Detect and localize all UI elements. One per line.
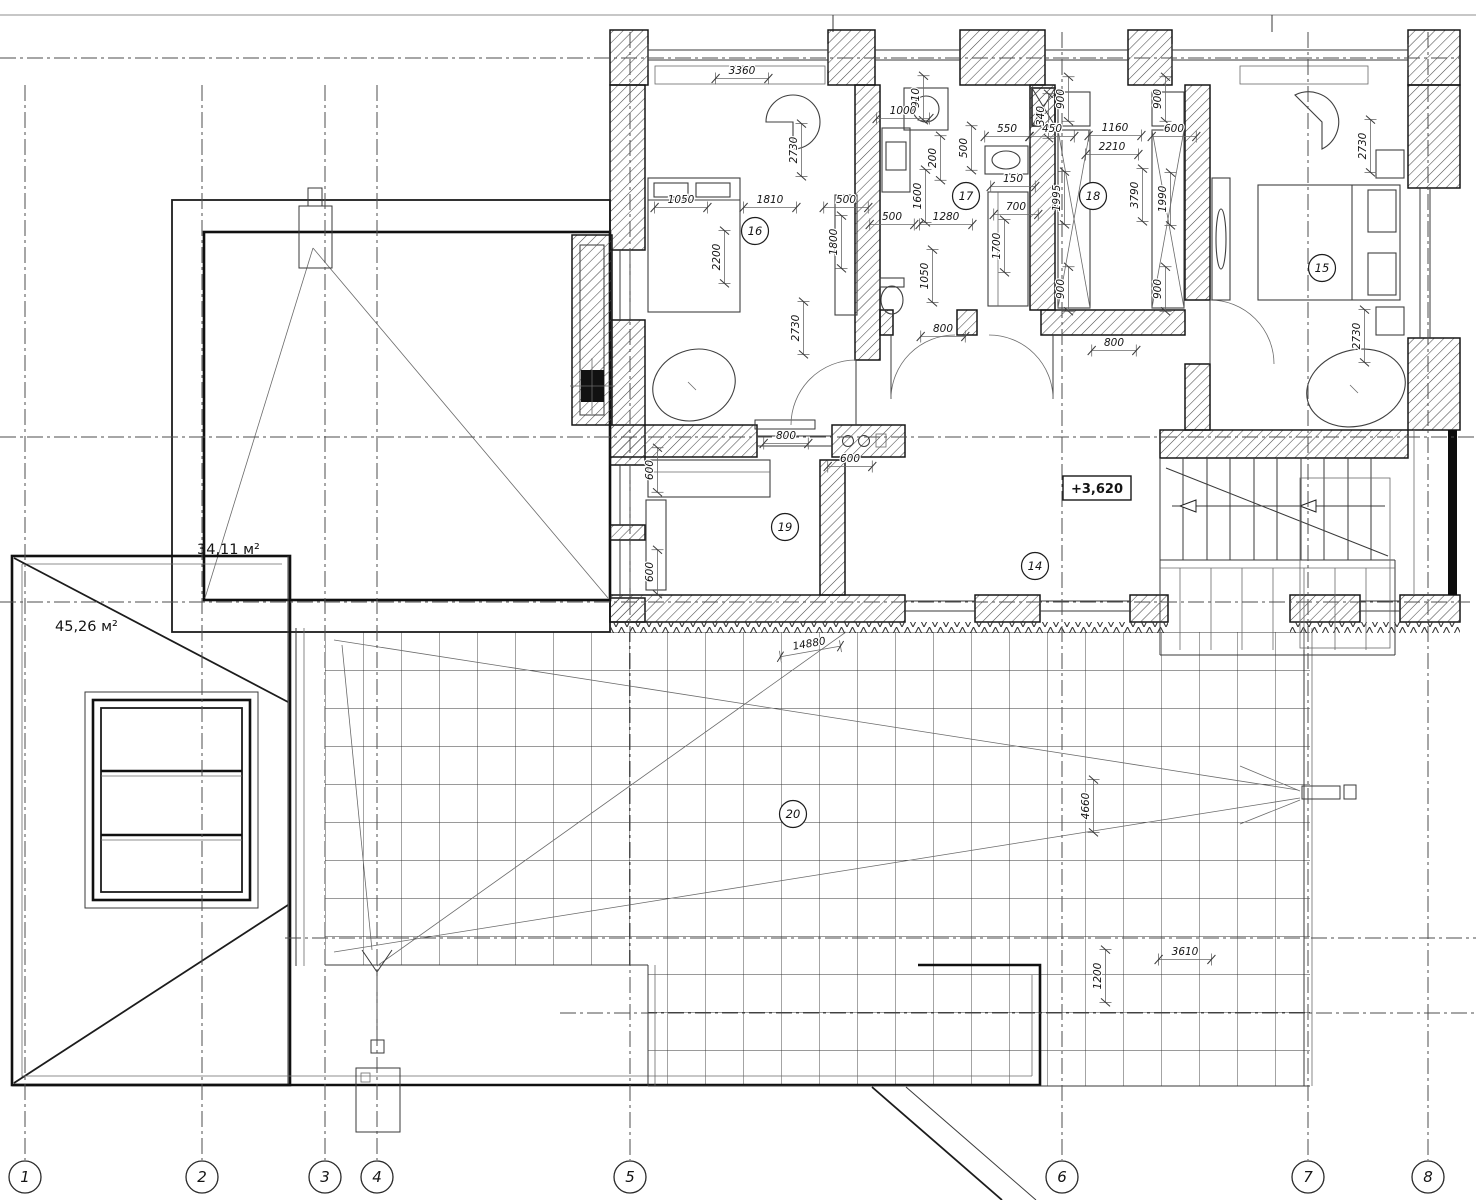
svg-text:7: 7	[1303, 1168, 1313, 1186]
axis-bubble: 3	[309, 1161, 341, 1193]
dimension-label: 200	[927, 132, 947, 185]
window-room19-left-1	[620, 465, 630, 525]
svg-text:1000: 1000	[890, 105, 917, 117]
svg-text:1050: 1050	[668, 194, 695, 206]
dimension-label: 550	[981, 123, 1034, 143]
radiator-room15	[1240, 66, 1368, 84]
axis-bubble: 5	[614, 1161, 646, 1193]
window-stair-right	[1414, 430, 1457, 595]
svg-text:2730: 2730	[1357, 132, 1369, 159]
rug-room15	[1298, 338, 1414, 437]
svg-text:6: 6	[1057, 1168, 1067, 1186]
dimension-label: 3360	[712, 65, 773, 85]
svg-text:1800: 1800	[828, 228, 840, 255]
room-number-bubble: 20	[780, 801, 807, 828]
svg-text:2730: 2730	[790, 314, 802, 341]
dimension-label: 1280	[916, 211, 977, 231]
svg-text:1995: 1995	[1051, 184, 1063, 211]
svg-text:600: 600	[644, 460, 656, 480]
dimension-label: 2730	[788, 120, 808, 181]
svg-text:3: 3	[320, 1168, 330, 1186]
exterior-chimney-left	[570, 235, 615, 425]
dimension-label: 500	[958, 122, 978, 175]
svg-text:1600: 1600	[912, 182, 924, 209]
svg-text:800: 800	[1104, 337, 1124, 349]
room-number-bubble: 14	[1022, 553, 1049, 580]
svg-text:3610: 3610	[1172, 946, 1199, 958]
svg-text:4: 4	[372, 1168, 382, 1186]
svg-text:900: 900	[1152, 279, 1164, 299]
axis-bubble: 4	[361, 1161, 393, 1193]
svg-text:500: 500	[882, 211, 902, 223]
dresser-room19	[648, 460, 770, 497]
nightstand-1	[1376, 150, 1404, 178]
svg-text:550: 550	[997, 123, 1017, 135]
room-number-bubble: 16	[742, 218, 769, 245]
door-bathroom17	[891, 335, 955, 399]
svg-text:2730: 2730	[788, 136, 800, 163]
area-label-annex: 34,11 м²	[197, 542, 260, 558]
dimension-label: 1160	[1085, 122, 1146, 142]
svg-text:450: 450	[1042, 123, 1062, 135]
area-label-lower-roof: 45,26 м²	[55, 619, 118, 635]
dimension-label: 1700	[991, 216, 1011, 277]
svg-text:19: 19	[778, 520, 793, 534]
dimension-label: 800	[1088, 337, 1141, 357]
svg-text:20: 20	[786, 807, 801, 821]
bed-room15	[1258, 185, 1400, 300]
svg-text:2: 2	[197, 1168, 207, 1186]
terrace-tiles	[325, 632, 1310, 1086]
svg-text:1050: 1050	[919, 262, 931, 289]
room-number-bubble: 19	[772, 514, 799, 541]
axis-bubble: 1	[9, 1161, 41, 1193]
dimension-label: 900	[1152, 263, 1172, 316]
svg-text:5: 5	[625, 1168, 635, 1186]
svg-text:1700: 1700	[991, 232, 1003, 259]
svg-text:900: 900	[1055, 89, 1067, 109]
svg-text:2200: 2200	[711, 243, 723, 270]
elevation-value: +3,620	[1071, 482, 1123, 497]
dimension-label: 2200	[711, 227, 731, 288]
svg-text:18: 18	[1086, 189, 1101, 203]
svg-text:500: 500	[836, 194, 856, 206]
svg-text:600: 600	[1164, 123, 1184, 135]
console-mirror	[1212, 178, 1230, 300]
svg-text:3790: 3790	[1129, 181, 1141, 208]
plan-canvas: +3,620 34,11 м² 45,26 м² 336010501810500…	[0, 0, 1476, 1200]
floor-plan-drawing: +3,620 34,11 м² 45,26 м² 336010501810500…	[0, 0, 1476, 1200]
exterior-walls	[0, 15, 1476, 633]
svg-text:500: 500	[958, 138, 970, 158]
svg-text:800: 800	[933, 323, 953, 335]
interior-walls	[610, 85, 1408, 595]
door-wardrobe18	[989, 335, 1053, 399]
dimension-label: 800	[760, 430, 813, 450]
svg-text:1: 1	[20, 1168, 30, 1186]
terrace-drain-right	[1302, 785, 1356, 799]
svg-text:700: 700	[1006, 201, 1026, 213]
room-number-bubble: 15	[1309, 255, 1336, 282]
room-number-bubble: 18	[1080, 183, 1107, 210]
roof-lower-left	[12, 556, 290, 1085]
svg-text:900: 900	[1152, 89, 1164, 109]
dimension-label: 1810	[740, 194, 801, 214]
skylight-window	[85, 692, 258, 908]
svg-text:14: 14	[1028, 559, 1043, 573]
lower-roof-cut-lines	[872, 1087, 1036, 1200]
svg-text:17: 17	[959, 189, 974, 203]
door-room15	[1210, 300, 1274, 364]
dimension-label: 2730	[790, 298, 810, 359]
dimension-label: 1800	[828, 212, 848, 273]
axis-bubble: 7	[1292, 1161, 1324, 1193]
svg-text:8: 8	[1423, 1168, 1433, 1186]
dimension-label: 1600	[912, 166, 932, 227]
room16-furniture	[643, 95, 857, 432]
axis-bubbles-layer: 12345678	[9, 1161, 1444, 1193]
svg-text:1990: 1990	[1157, 185, 1169, 212]
svg-text:1160: 1160	[1102, 122, 1129, 134]
axis-bubble: 6	[1046, 1161, 1078, 1193]
svg-text:600: 600	[840, 453, 860, 465]
svg-text:150: 150	[1003, 173, 1023, 185]
armchair-room15	[1295, 92, 1339, 149]
room19-furniture	[646, 460, 770, 590]
dimension-label: 2210	[1082, 141, 1143, 161]
stair-direction-arrow	[1172, 500, 1385, 512]
svg-text:200: 200	[927, 148, 939, 168]
svg-text:15: 15	[1315, 261, 1330, 275]
svg-text:1280: 1280	[933, 211, 960, 223]
svg-text:1200: 1200	[1092, 962, 1104, 989]
window-room19-left-2	[620, 540, 630, 598]
dimension-label: 2730	[1351, 306, 1371, 367]
svg-text:2210: 2210	[1099, 141, 1126, 153]
svg-text:900: 900	[1055, 279, 1067, 299]
svg-text:800: 800	[776, 430, 796, 442]
nightstand-2	[1376, 307, 1404, 335]
dimension-label: 1990	[1157, 169, 1177, 230]
svg-text:3360: 3360	[729, 65, 756, 77]
chimney-axis4	[356, 1068, 400, 1132]
svg-text:16: 16	[748, 224, 763, 238]
axis-bubble: 8	[1412, 1161, 1444, 1193]
roof-left-annex	[172, 188, 610, 632]
svg-text:4660: 4660	[1080, 792, 1092, 819]
dimension-label: 3790	[1129, 165, 1149, 226]
window-room16-left	[620, 250, 630, 320]
door-room16	[791, 360, 856, 425]
axis-bubble: 2	[186, 1161, 218, 1193]
svg-text:600: 600	[644, 562, 656, 582]
rug-room16	[643, 338, 746, 433]
dimension-label: 1050	[919, 246, 939, 307]
elevation-mark: +3,620	[1063, 476, 1131, 500]
svg-text:1810: 1810	[757, 194, 784, 206]
svg-text:2730: 2730	[1351, 322, 1363, 349]
dimension-label: 2730	[1357, 116, 1377, 177]
room-number-bubble: 17	[953, 183, 980, 210]
